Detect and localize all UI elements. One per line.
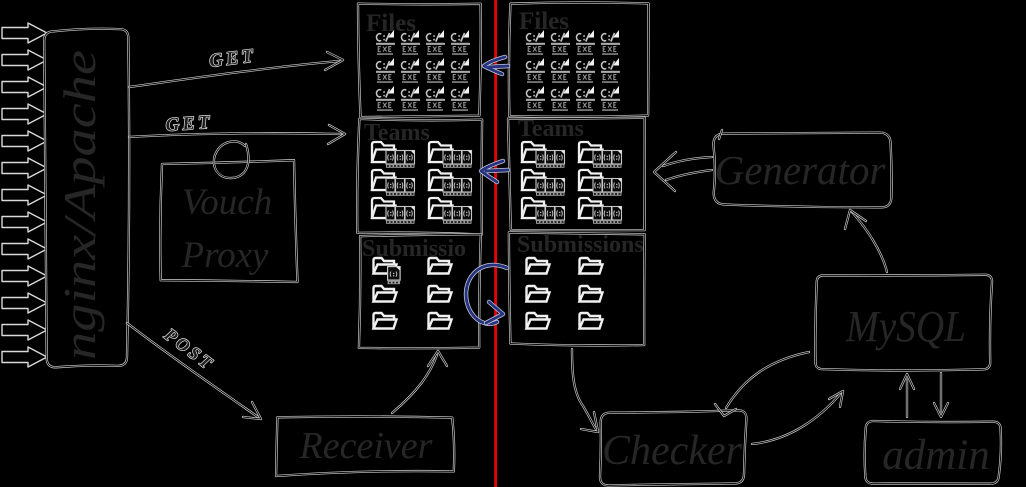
svg-text:nginx/Apache: nginx/Apache [54, 50, 105, 360]
svg-text:Proxy: Proxy [181, 235, 270, 276]
svg-text:Submissions: Submissions [517, 232, 644, 258]
svg-text:Files: Files [366, 10, 416, 37]
svg-text:admin: admin [882, 432, 990, 479]
svg-text:Generator: Generator [715, 147, 887, 193]
svg-text:MySQL: MySQL [845, 302, 966, 351]
svg-text:Receiver: Receiver [299, 425, 433, 467]
svg-text:Checker: Checker [602, 428, 743, 474]
svg-text:Files: Files [519, 8, 569, 35]
svg-text:GET: GET [165, 112, 213, 136]
svg-text:Teams: Teams [518, 116, 584, 142]
svg-text:Vouch: Vouch [182, 182, 272, 223]
